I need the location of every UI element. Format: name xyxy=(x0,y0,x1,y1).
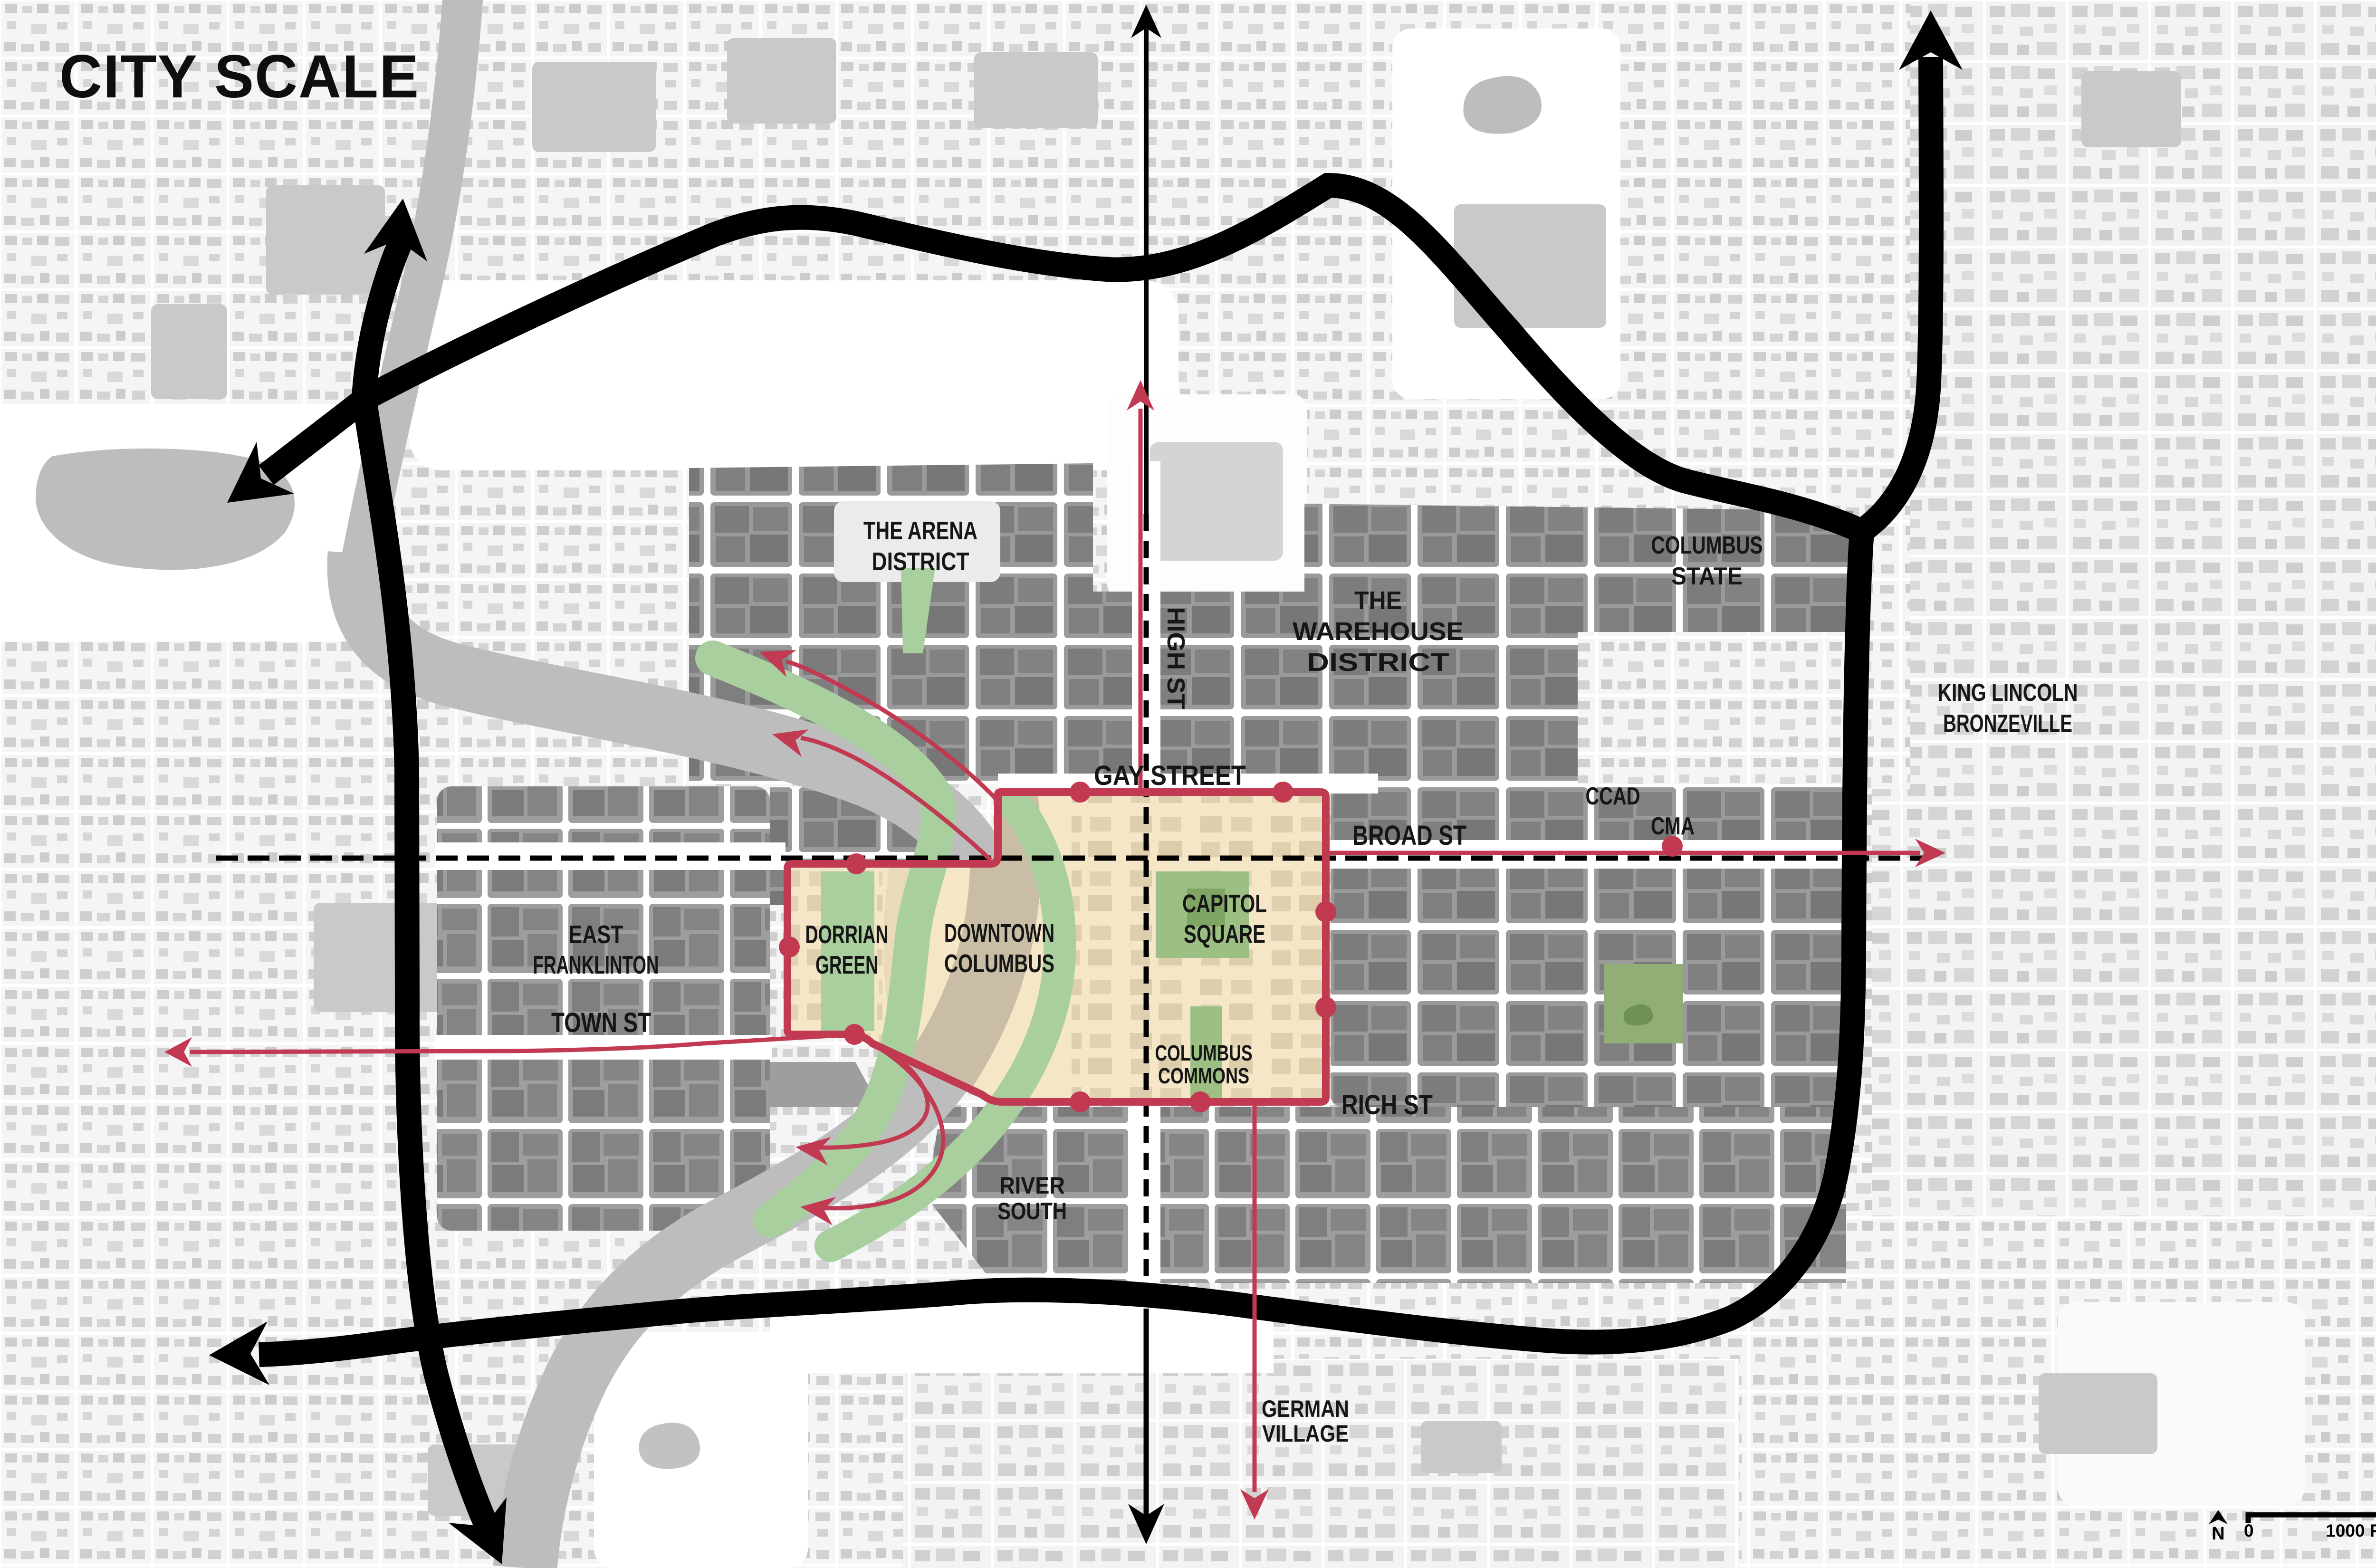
svg-text:GERMANVILLAGE: GERMANVILLAGE xyxy=(1262,1396,1349,1447)
svg-text:CITY SCALE: CITY SCALE xyxy=(59,43,420,111)
svg-text:0: 0 xyxy=(2244,1521,2254,1540)
svg-text:CMA: CMA xyxy=(1651,813,1695,840)
svg-text:GAY STREET: GAY STREET xyxy=(1094,760,1246,791)
svg-text:CCAD: CCAD xyxy=(1586,783,1640,810)
svg-text:RIVERSOUTH: RIVERSOUTH xyxy=(997,1172,1067,1224)
svg-text:HIGH ST: HIGH ST xyxy=(1162,607,1189,709)
svg-text:COLUMBUSCOMMONS: COLUMBUSCOMMONS xyxy=(1155,1041,1253,1088)
svg-text:RICH ST: RICH ST xyxy=(1341,1090,1433,1120)
svg-text:BROAD ST: BROAD ST xyxy=(1352,820,1466,851)
svg-text:TOWN ST: TOWN ST xyxy=(551,1007,651,1038)
svg-text:1000 FT: 1000 FT xyxy=(2326,1521,2376,1540)
svg-text:N: N xyxy=(2212,1524,2224,1544)
